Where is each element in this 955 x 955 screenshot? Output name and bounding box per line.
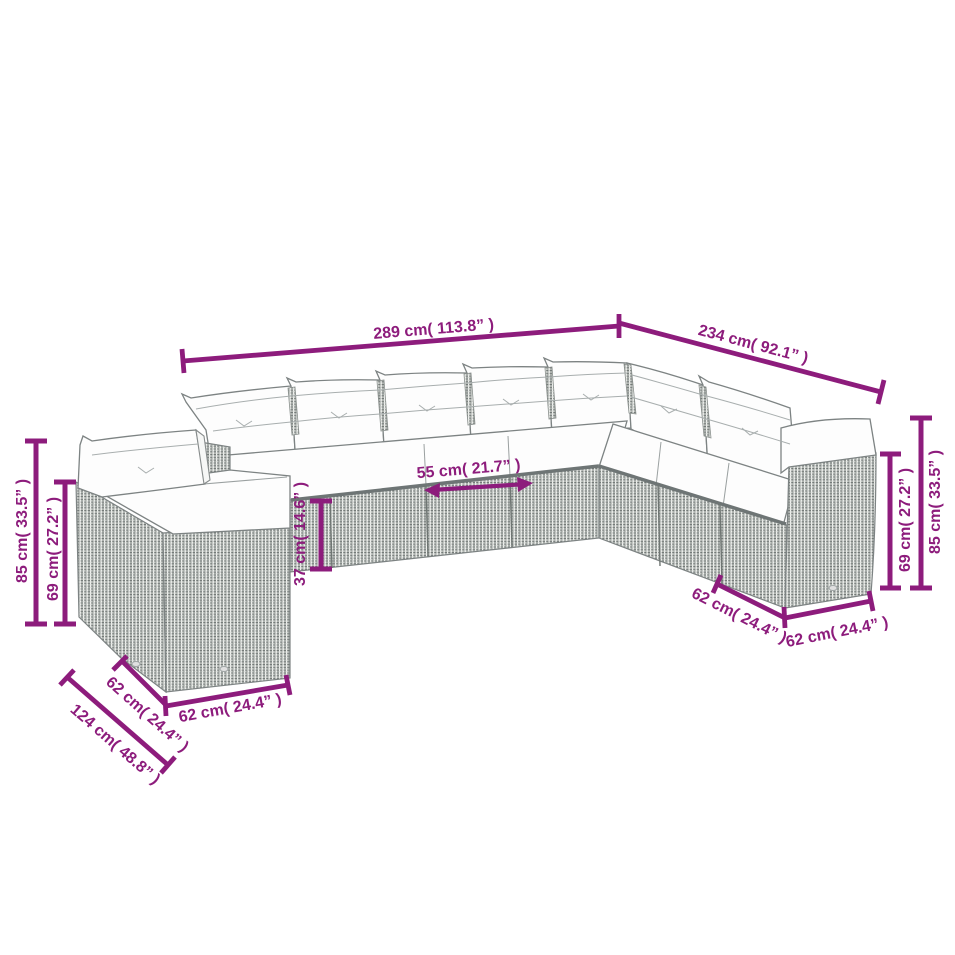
svg-text:85 cm( 33.5” ): 85 cm( 33.5” ) [14, 479, 31, 583]
svg-text:85 cm( 33.5” ): 85 cm( 33.5” ) [927, 450, 944, 554]
svg-text:69 cm( 27.2” ): 69 cm( 27.2” ) [897, 468, 914, 572]
svg-text:37 cm( 14.6” ): 37 cm( 14.6” ) [292, 482, 309, 586]
svg-text:69 cm( 27.2” ): 69 cm( 27.2” ) [45, 497, 62, 601]
svg-text:62 cm( 24.4” ): 62 cm( 24.4” ) [784, 614, 889, 651]
